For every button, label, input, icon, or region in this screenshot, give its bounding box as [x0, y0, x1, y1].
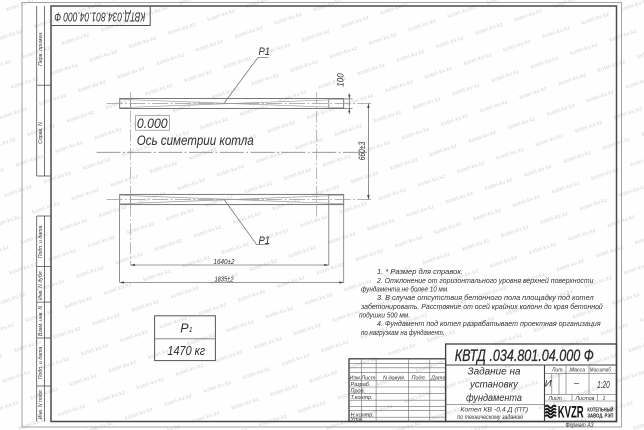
svg-text:фундамента: фундамента [466, 392, 522, 404]
svg-text:1. * Размер для справок.: 1. * Размер для справок. [377, 267, 463, 276]
svg-text:КВТД .034.801.04.000 Ф: КВТД .034.801.04.000 Ф [455, 347, 594, 365]
svg-text:Инв. N дубл.: Инв. N дубл. [38, 270, 44, 300]
svg-text:Задание на: Задание на [468, 366, 521, 377]
svg-text:1:20: 1:20 [597, 380, 610, 391]
svg-text:–: – [573, 377, 580, 387]
svg-text:N докум.: N докум. [383, 375, 405, 381]
svg-text:1640±2: 1640±2 [214, 257, 236, 266]
svg-text:660±3: 660±3 [357, 142, 367, 161]
svg-text:по нагрузкам на фундамент.: по нагрузкам на фундамент. [361, 328, 445, 337]
svg-text:Подп.: Подп. [412, 375, 427, 381]
svg-text:Подп. и дата: Подп. и дата [38, 347, 44, 380]
svg-text:Р1: Р1 [259, 235, 271, 247]
svg-text:Подп. и дата: Подп. и дата [38, 226, 44, 259]
svg-text:1835±2: 1835±2 [215, 274, 235, 283]
svg-text:Утв.: Утв. [350, 417, 364, 423]
svg-text:Дата: Дата [430, 375, 446, 381]
svg-text:Взам. инв. N: Взам. инв. N [38, 306, 44, 336]
svg-text:Масштаб: Масштаб [590, 368, 612, 374]
svg-text:Котел КВ -0,4 Д (ПТ): Котел КВ -0,4 Д (ПТ) [460, 407, 528, 414]
svg-text:Ось симетрии котла: Ось симетрии котла [137, 132, 254, 148]
svg-text:подушки 500 мм.: подушки 500 мм. [359, 311, 410, 320]
svg-text:0.000: 0.000 [137, 115, 168, 131]
svg-text:Справ. N: Справ. N [38, 122, 44, 144]
svg-text:Инв. N подл.: Инв. N подл. [38, 389, 44, 419]
svg-text:1: 1 [189, 327, 193, 334]
svg-text:Р1: Р1 [259, 46, 271, 58]
svg-text:Формат А3: Формат А3 [566, 423, 595, 429]
svg-text:Пров.: Пров. [351, 389, 366, 395]
svg-text:ЗАВОД. РЭП: ЗАВОД. РЭП [587, 413, 613, 419]
svg-text:по техническому заданию: по техническому заданию [457, 413, 523, 421]
svg-text:Изм.Лист: Изм.Лист [350, 375, 376, 381]
svg-text:Масса: Масса [570, 368, 585, 374]
svg-text:КВТД.034.801.04.000 Ф: КВТД.034.801.04.000 Ф [54, 10, 145, 24]
svg-text:Лит.: Лит. [551, 368, 564, 374]
svg-text:100: 100 [336, 73, 346, 87]
svg-text:1470 кг: 1470 кг [167, 344, 205, 358]
svg-text:И: И [545, 378, 552, 389]
svg-text:KVZR: KVZR [558, 402, 584, 421]
svg-text:Перв. примен.: Перв. примен. [38, 31, 44, 65]
svg-text:фундамента не более 10 мм.: фундамента не более 10 мм. [361, 285, 449, 294]
svg-text:Разраб.: Разраб. [351, 382, 371, 388]
svg-text:Лист: Лист [548, 396, 563, 402]
svg-text:3. В случае отсутствия бетонно: 3. В случае отсутствия бетонного пола пл… [377, 293, 594, 302]
svg-text:установку: установку [469, 380, 519, 391]
svg-text:Листов: Листов [575, 396, 595, 402]
svg-text:КОТЕЛЬНЫЙ: КОТЕЛЬНЫЙ [587, 406, 613, 414]
svg-text:Т.контр.: Т.контр. [351, 395, 373, 401]
svg-text:1: 1 [603, 396, 606, 402]
